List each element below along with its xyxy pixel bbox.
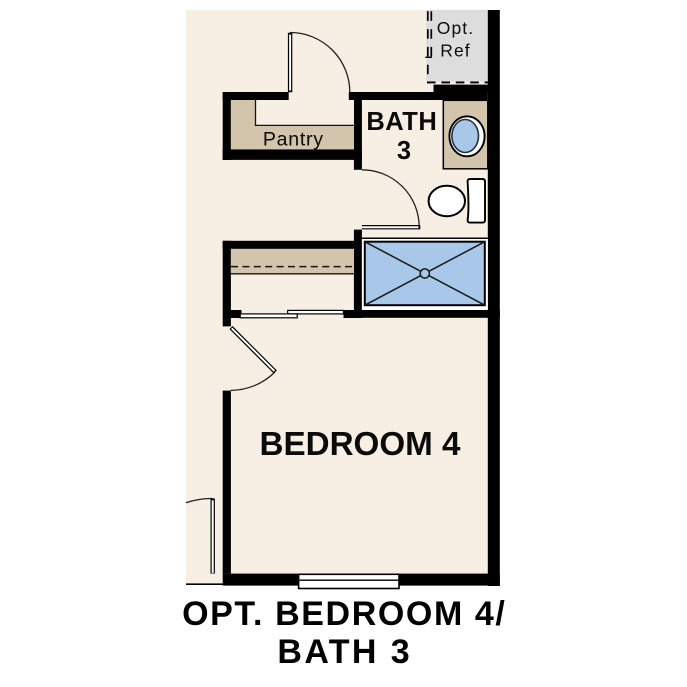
svg-text:BATH: BATH — [366, 108, 437, 136]
svg-text:Ref: Ref — [440, 40, 471, 60]
svg-text:Pantry: Pantry — [263, 129, 324, 151]
svg-text:BEDROOM 4: BEDROOM 4 — [260, 426, 462, 463]
svg-text:OPT. BEDROOM 4/: OPT. BEDROOM 4/ — [182, 595, 506, 633]
svg-text:BATH 3: BATH 3 — [277, 633, 412, 671]
svg-text:Opt.: Opt. — [437, 18, 474, 38]
svg-text:3: 3 — [397, 137, 412, 165]
